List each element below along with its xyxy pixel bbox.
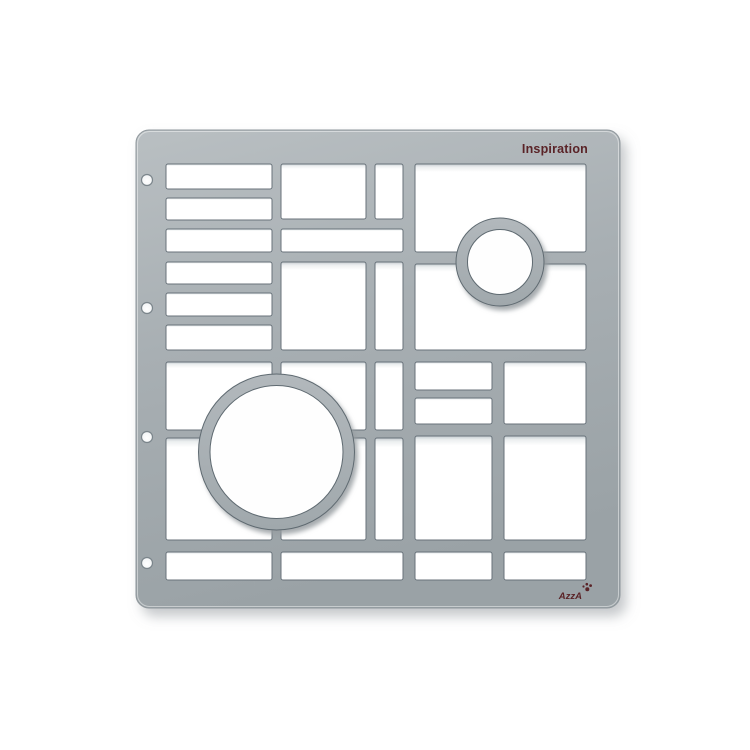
cutout-bottom-3	[415, 552, 492, 580]
stencil-illustration: Inspiration AzzA	[0, 0, 750, 750]
cutout-bottom-1	[166, 552, 272, 580]
cutout-col3-lower-top	[375, 362, 403, 430]
small-ring-inner	[468, 230, 533, 295]
binder-hole-3	[142, 432, 153, 443]
cutout-right-small-2	[415, 398, 492, 424]
cutout-col3-lower-bottom	[375, 438, 403, 540]
cutout-bottom-2	[281, 552, 403, 580]
cutout-right-big-left	[415, 436, 492, 540]
cutout-strip-2	[166, 198, 272, 220]
binder-hole-2	[142, 303, 153, 314]
cutout-right-medium	[504, 362, 586, 424]
large-ring-inner	[210, 386, 343, 519]
cutout-strip-5	[166, 293, 272, 316]
cutout-strip-3	[166, 229, 272, 252]
cutout-bottom-4	[504, 552, 586, 580]
cutout-cross-band	[281, 229, 403, 252]
cutout-right-small-1	[415, 362, 492, 390]
binder-hole-1	[142, 175, 153, 186]
cutout-strip-1	[166, 164, 272, 189]
brand-logo-text: AzzA	[558, 591, 582, 602]
title-inspiration: Inspiration	[522, 142, 588, 156]
cutout-strip-6	[166, 325, 272, 350]
cutout-right-big-right	[504, 436, 586, 540]
cutout-col2-mid	[281, 262, 366, 350]
small-circle-ring	[456, 218, 544, 306]
cutout-col2-top	[281, 164, 366, 219]
large-circle-ring	[199, 374, 355, 530]
product-photo: Inspiration AzzA	[0, 0, 750, 750]
binder-hole-4	[142, 558, 153, 569]
cutout-col3-top	[375, 164, 403, 219]
cutout-strip-4	[166, 262, 272, 284]
cutout-col3-mid	[375, 262, 403, 350]
